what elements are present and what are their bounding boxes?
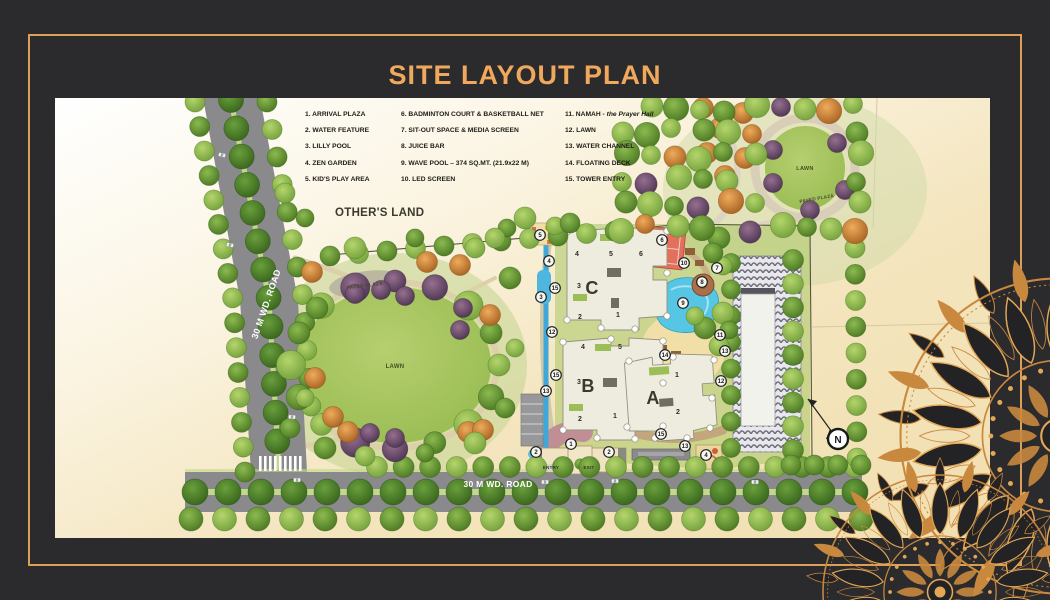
tree	[464, 432, 486, 454]
tree	[302, 262, 323, 283]
tree	[712, 457, 733, 478]
legend-item: 1. ARRIVAL PLAZA	[305, 107, 370, 123]
tree	[320, 246, 340, 266]
tree	[842, 218, 867, 243]
tree	[488, 354, 510, 376]
amenity-marker-number: 12	[718, 379, 725, 385]
tree	[783, 273, 804, 294]
tree	[230, 387, 250, 407]
map-label-lawn-center: LAWN	[386, 364, 405, 370]
unit-number: 3	[577, 283, 581, 290]
tree	[632, 457, 653, 478]
tree	[648, 507, 672, 531]
tree	[406, 229, 424, 247]
amenity-marker: 12	[716, 376, 727, 387]
unit-number: 4	[581, 344, 585, 351]
building-corner-bump	[626, 358, 632, 364]
tree	[377, 241, 397, 261]
tree	[225, 313, 245, 333]
tree	[849, 191, 871, 213]
unit-number: 4	[575, 251, 579, 258]
tree	[846, 317, 866, 337]
tree	[447, 507, 471, 531]
tree	[738, 457, 759, 478]
building-corner-bump	[664, 270, 670, 276]
tree	[776, 479, 802, 505]
tree	[495, 398, 515, 418]
tree	[782, 507, 806, 531]
tree	[204, 190, 224, 210]
tree	[849, 507, 873, 531]
amenity-marker: 2	[604, 447, 615, 458]
amenity-marker: 13	[680, 441, 691, 452]
tree	[749, 507, 773, 531]
tree	[514, 507, 538, 531]
tree	[828, 455, 848, 475]
amenity-marker: 6	[657, 235, 668, 246]
legend: 1. ARRIVAL PLAZA2. WATER FEATURE3. LILLY…	[55, 107, 990, 193]
unit-number: 1	[675, 372, 679, 379]
amenity-marker: 5	[535, 230, 546, 241]
tree	[245, 229, 270, 254]
unit-number: 2	[578, 416, 582, 423]
tree	[722, 412, 741, 431]
page-title: SITE LAYOUT PLAN	[0, 60, 1050, 91]
tree	[465, 238, 485, 258]
tree	[248, 479, 274, 505]
tree	[644, 479, 670, 505]
tree	[347, 507, 371, 531]
tree	[213, 507, 237, 531]
compass-north-letter: N	[834, 435, 841, 446]
amenity-marker: 13	[541, 386, 552, 397]
tree	[434, 236, 454, 256]
amenity-marker: 4	[544, 256, 555, 267]
tree	[480, 305, 501, 326]
amenity-marker-number: 15	[553, 373, 560, 379]
building-corner-bump	[707, 425, 713, 431]
tree	[226, 338, 246, 358]
unit-number: 1	[613, 413, 617, 420]
building-corner-bump	[632, 436, 638, 442]
tree	[783, 392, 804, 413]
tree	[703, 243, 723, 263]
car	[288, 415, 295, 419]
legend-item: 4. ZEN GARDEN	[305, 156, 370, 172]
tree	[710, 479, 736, 505]
amenity-marker: 8	[697, 277, 708, 288]
tree	[215, 479, 241, 505]
tree	[314, 437, 336, 459]
tree	[218, 263, 238, 283]
tree	[578, 479, 604, 505]
tree	[514, 207, 536, 229]
amenity-marker-number: 15	[658, 432, 665, 438]
amenity-marker: 1	[566, 439, 577, 450]
amenity-marker-number: 13	[722, 349, 729, 355]
tree	[608, 218, 633, 243]
amenity-marker: 15	[551, 370, 562, 381]
tree	[417, 252, 438, 273]
amenity-marker-number: 13	[543, 389, 550, 395]
tree	[413, 479, 439, 505]
tree	[715, 507, 739, 531]
parking-strip	[521, 394, 543, 446]
tree	[232, 412, 252, 432]
legend-item: 5. KID'S PLAY AREA	[305, 172, 370, 188]
tree	[560, 213, 580, 233]
tree	[845, 264, 865, 284]
tree	[179, 507, 203, 531]
tree	[338, 422, 359, 443]
tree	[783, 250, 804, 271]
amenity-marker-number: 12	[549, 330, 556, 336]
amenity-marker: 15	[656, 429, 667, 440]
building-corner-bump	[564, 317, 570, 323]
tree	[783, 321, 804, 342]
unit-number: 2	[676, 409, 680, 416]
car	[542, 480, 549, 484]
car	[752, 480, 759, 484]
tree	[722, 439, 741, 458]
tree	[344, 237, 366, 259]
tree	[313, 507, 337, 531]
map-label-road-bottom: 30 M WD. ROAD	[463, 479, 532, 489]
tree	[416, 444, 434, 462]
tree	[414, 507, 438, 531]
tree	[499, 267, 521, 289]
tree	[473, 457, 494, 478]
amenity-marker-number: 14	[662, 353, 669, 359]
tree	[667, 215, 689, 237]
tree	[213, 239, 233, 259]
tree	[314, 479, 340, 505]
tree	[240, 201, 265, 226]
tree	[506, 339, 524, 357]
map-label-exit: EXIT	[584, 465, 595, 470]
brochure-page: SITE LAYOUT PLAN	[0, 0, 1050, 600]
tree	[847, 396, 867, 416]
tree	[847, 422, 867, 442]
map-label-tower-a: A	[646, 388, 659, 408]
tree	[450, 255, 471, 276]
site-plan-panel: 541531215136107891113121415131224 456321…	[55, 98, 990, 538]
tree	[783, 368, 804, 389]
building-corner-bump	[632, 326, 638, 332]
tree	[637, 191, 662, 216]
tree	[281, 479, 307, 505]
tree	[783, 345, 804, 366]
tree	[739, 221, 761, 243]
tree	[223, 288, 243, 308]
tree	[636, 215, 655, 234]
tree	[485, 228, 505, 248]
legend-item: 12. LAWN	[565, 123, 653, 139]
tree	[722, 386, 741, 405]
amenity-marker-number: 13	[682, 444, 689, 450]
tree	[481, 507, 505, 531]
map-label-tower-b: B	[581, 376, 594, 396]
tree	[282, 230, 302, 250]
amenity-marker: 2	[531, 447, 542, 458]
tree	[606, 457, 627, 478]
tree	[846, 343, 866, 363]
tree	[277, 202, 297, 222]
tree	[246, 507, 270, 531]
legend-column: 11. NAMAH - the Prayer Hall12. LAWN13. W…	[565, 107, 653, 188]
building-corner-bump	[608, 336, 614, 342]
tree	[355, 446, 375, 466]
car	[294, 478, 301, 482]
building-corner-bump	[560, 339, 566, 345]
tree	[722, 280, 741, 299]
amenity-marker: 13	[720, 346, 731, 357]
tree	[615, 507, 639, 531]
tree	[712, 302, 734, 324]
amenity-marker: 9	[678, 298, 689, 309]
unit-number: 1	[616, 312, 620, 319]
tree	[783, 297, 804, 318]
map-label-others-land: OTHER'S LAND	[335, 207, 424, 219]
legend-item: 6. BADMINTON COURT & BASKETBALL NET	[401, 107, 544, 123]
tree	[306, 297, 328, 319]
tree	[422, 275, 448, 301]
legend-item: 8. JUICE BAR	[401, 139, 544, 155]
building-corner-bump	[664, 313, 670, 319]
tree	[233, 437, 253, 457]
tree	[296, 389, 314, 407]
tree	[659, 457, 680, 478]
tree	[280, 507, 304, 531]
legend-item: 2. WATER FEATURE	[305, 123, 370, 139]
legend-item: 14. FLOATING DECK	[565, 156, 653, 172]
legend-item: 9. WAVE POOL – 374 SQ.MT. (21.9x22 M)	[401, 156, 544, 172]
tree	[846, 291, 866, 311]
tree	[454, 299, 473, 318]
amenity-marker: 12	[547, 327, 558, 338]
tree	[380, 507, 404, 531]
amenity-marker: 3	[536, 292, 547, 303]
tree	[305, 368, 326, 389]
amenity-marker: 15	[550, 283, 561, 294]
tree	[615, 191, 637, 213]
legend-item: 7. SIT-OUT SPACE & MEDIA SCREEN	[401, 123, 544, 139]
tree	[288, 322, 310, 344]
tree	[816, 507, 840, 531]
map-label-tower-c: C	[585, 278, 598, 298]
building-corner-bump	[660, 338, 666, 344]
building-corner-bump	[598, 325, 604, 331]
amenity-marker: 4	[701, 450, 712, 461]
legend-item: 10. LED SCREEN	[401, 172, 544, 188]
unit-number: 6	[639, 251, 643, 258]
amenity-marker-number: 10	[681, 261, 688, 267]
tree	[446, 457, 467, 478]
building-corner-bump	[709, 395, 715, 401]
tree	[770, 212, 795, 237]
tree	[682, 507, 706, 531]
tree	[280, 418, 300, 438]
amenity-marker-number: 11	[717, 333, 724, 339]
amenity-marker: 10	[679, 258, 690, 269]
tree	[689, 215, 714, 240]
building-corner-bump	[660, 380, 666, 386]
legend-item: 15. TOWER ENTRY	[565, 172, 653, 188]
legend-item: 13. WATER CHANNEL	[565, 139, 653, 155]
building-corner-bump	[711, 357, 717, 363]
tree	[235, 462, 255, 482]
amenity-marker: 14	[660, 350, 671, 361]
amenity-marker-number: 15	[552, 286, 559, 292]
legend-column: 6. BADMINTON COURT & BASKETBALL NET7. SI…	[401, 107, 544, 188]
tree	[296, 209, 314, 227]
building-corner-bump	[594, 435, 600, 441]
tree	[380, 479, 406, 505]
tree	[209, 214, 229, 234]
tree	[846, 369, 866, 389]
tree	[677, 479, 703, 505]
legend-item: 3. LILLY POOL	[305, 139, 370, 155]
unit-number: 2	[578, 314, 582, 321]
tree	[361, 424, 380, 443]
legend-item: 11. NAMAH - the Prayer Hall	[565, 107, 653, 123]
tree	[798, 218, 817, 237]
tree	[809, 479, 835, 505]
unit-number: 5	[618, 344, 622, 351]
building-corner-bump	[624, 424, 630, 430]
tree	[842, 479, 868, 505]
tree	[804, 455, 824, 475]
map-label-entry: ENTRY	[543, 465, 559, 470]
tree	[665, 197, 684, 216]
tree	[276, 350, 305, 379]
tree	[545, 479, 571, 505]
amenity-marker: 7	[712, 263, 723, 274]
tree	[548, 507, 572, 531]
unit-number: 5	[609, 251, 613, 258]
tree	[182, 479, 208, 505]
car	[612, 479, 619, 483]
tree	[820, 218, 842, 240]
legend-column: 1. ARRIVAL PLAZA2. WATER FEATURE3. LILLY…	[305, 107, 370, 188]
tree	[386, 429, 405, 448]
tree	[722, 359, 741, 378]
tree	[581, 507, 605, 531]
tree	[396, 287, 415, 306]
tree	[347, 479, 373, 505]
amenity-marker: 11	[715, 330, 726, 341]
tree	[451, 321, 470, 340]
tree	[228, 363, 248, 383]
building-corner-bump	[560, 427, 566, 433]
tree	[499, 457, 520, 478]
tree	[783, 416, 804, 437]
tree	[686, 307, 704, 325]
tree	[746, 194, 765, 213]
tree	[851, 455, 871, 475]
tree	[781, 455, 801, 475]
